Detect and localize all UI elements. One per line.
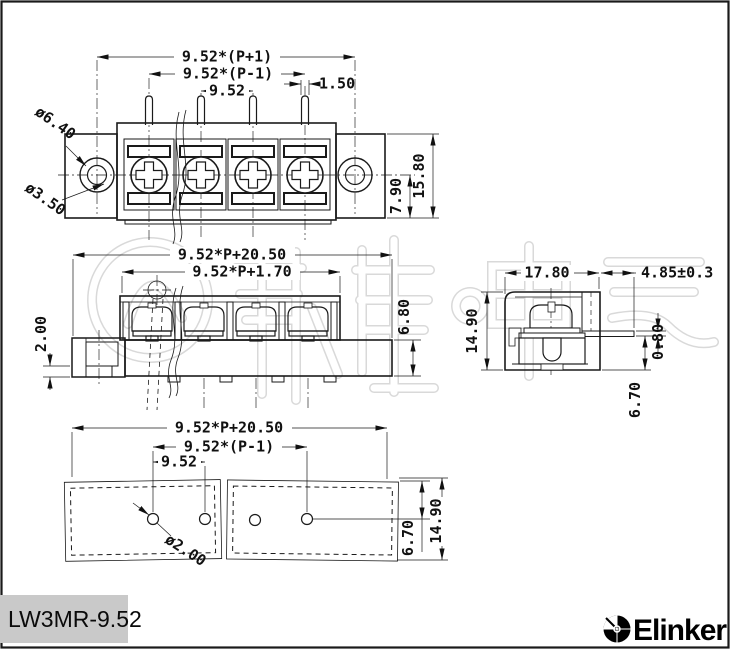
section-view: 17.80 4.85±0.3 14.90 0.80 6.70 — [463, 264, 713, 419]
dim-side-total-length: 9.52*P+20.50 — [178, 246, 286, 264]
brand-text: Elinker — [633, 614, 727, 647]
front-view: 9.52*(P+1) 9.52*(P-1) 9.52 1.50 ø6.40 ø3… — [22, 48, 439, 245]
dim-hole-dia: ø2.00 — [162, 530, 210, 570]
dim-pitch: 9.52 — [209, 82, 245, 100]
dim-housing-length: 9.52*P+1.70 — [192, 263, 291, 281]
section-dimensions: 17.80 4.85±0.3 14.90 0.80 6.70 — [463, 264, 713, 419]
terminal-cell — [176, 139, 226, 210]
dim-hole-edge-offset: 6.70 — [399, 520, 417, 556]
dim-base-height: 6.80 — [395, 299, 413, 335]
solder-tab — [582, 331, 634, 337]
left-mount-flange — [65, 134, 117, 218]
dim-mount-hole-outer: ø6.40 — [32, 103, 79, 144]
dim-section-height: 14.90 — [463, 308, 481, 353]
dim-tab-offset: 6.70 — [626, 382, 644, 418]
terminal-cells — [124, 139, 330, 210]
dim-tab-thickness: 0.80 — [649, 324, 667, 360]
dim-tab-extension: 4.85±0.3 — [641, 264, 713, 282]
dim-footprint-length: 9.52*P+20.50 — [175, 419, 283, 437]
dim-board-width: 14.90 — [427, 498, 445, 543]
footprint-view: 9.52*P+20.50 9.52*(P-1) 9.52 ø2.00 6.70 … — [64, 419, 448, 570]
dim-footprint-pitch: 9.52 — [161, 453, 197, 471]
brand-logo-icon — [604, 616, 631, 643]
drill-holes — [148, 514, 313, 526]
technical-drawing-sheet: 9.52*(P+1) 9.52*(P-1) 9.52 1.50 ø6.40 ø3… — [0, 0, 730, 650]
section-clamp — [512, 338, 588, 370]
dim-footprint-pitch-span: 9.52*(P-1) — [184, 438, 274, 456]
drawing-canvas: 9.52*(P+1) 9.52*(P-1) 9.52 1.50 ø6.40 ø3… — [0, 0, 730, 650]
side-flange-section — [72, 330, 125, 385]
dim-pin-width: 1.50 — [319, 75, 355, 93]
dim-depth: 17.80 — [524, 264, 569, 282]
dim-total-height: 15.80 — [410, 153, 428, 198]
right-mount-flange — [336, 134, 385, 218]
dim-flange-lip: 2.00 — [32, 316, 50, 352]
dim-pitch-total: 9.52*(P+1) — [182, 48, 272, 66]
part-number-text: LW3MR-9.52 — [8, 606, 142, 632]
base-feet — [168, 376, 336, 382]
part-number-label: LW3MR-9.52 — [0, 595, 142, 643]
brand-logo: Elinker — [604, 614, 728, 647]
dim-center-height: 7.90 — [387, 178, 405, 214]
solder-pins — [146, 96, 309, 125]
terminal-cell — [228, 139, 278, 210]
dim-mount-hole-inner: ø3.50 — [22, 179, 69, 220]
dim-pitch-span: 9.52*(P-1) — [183, 65, 273, 83]
